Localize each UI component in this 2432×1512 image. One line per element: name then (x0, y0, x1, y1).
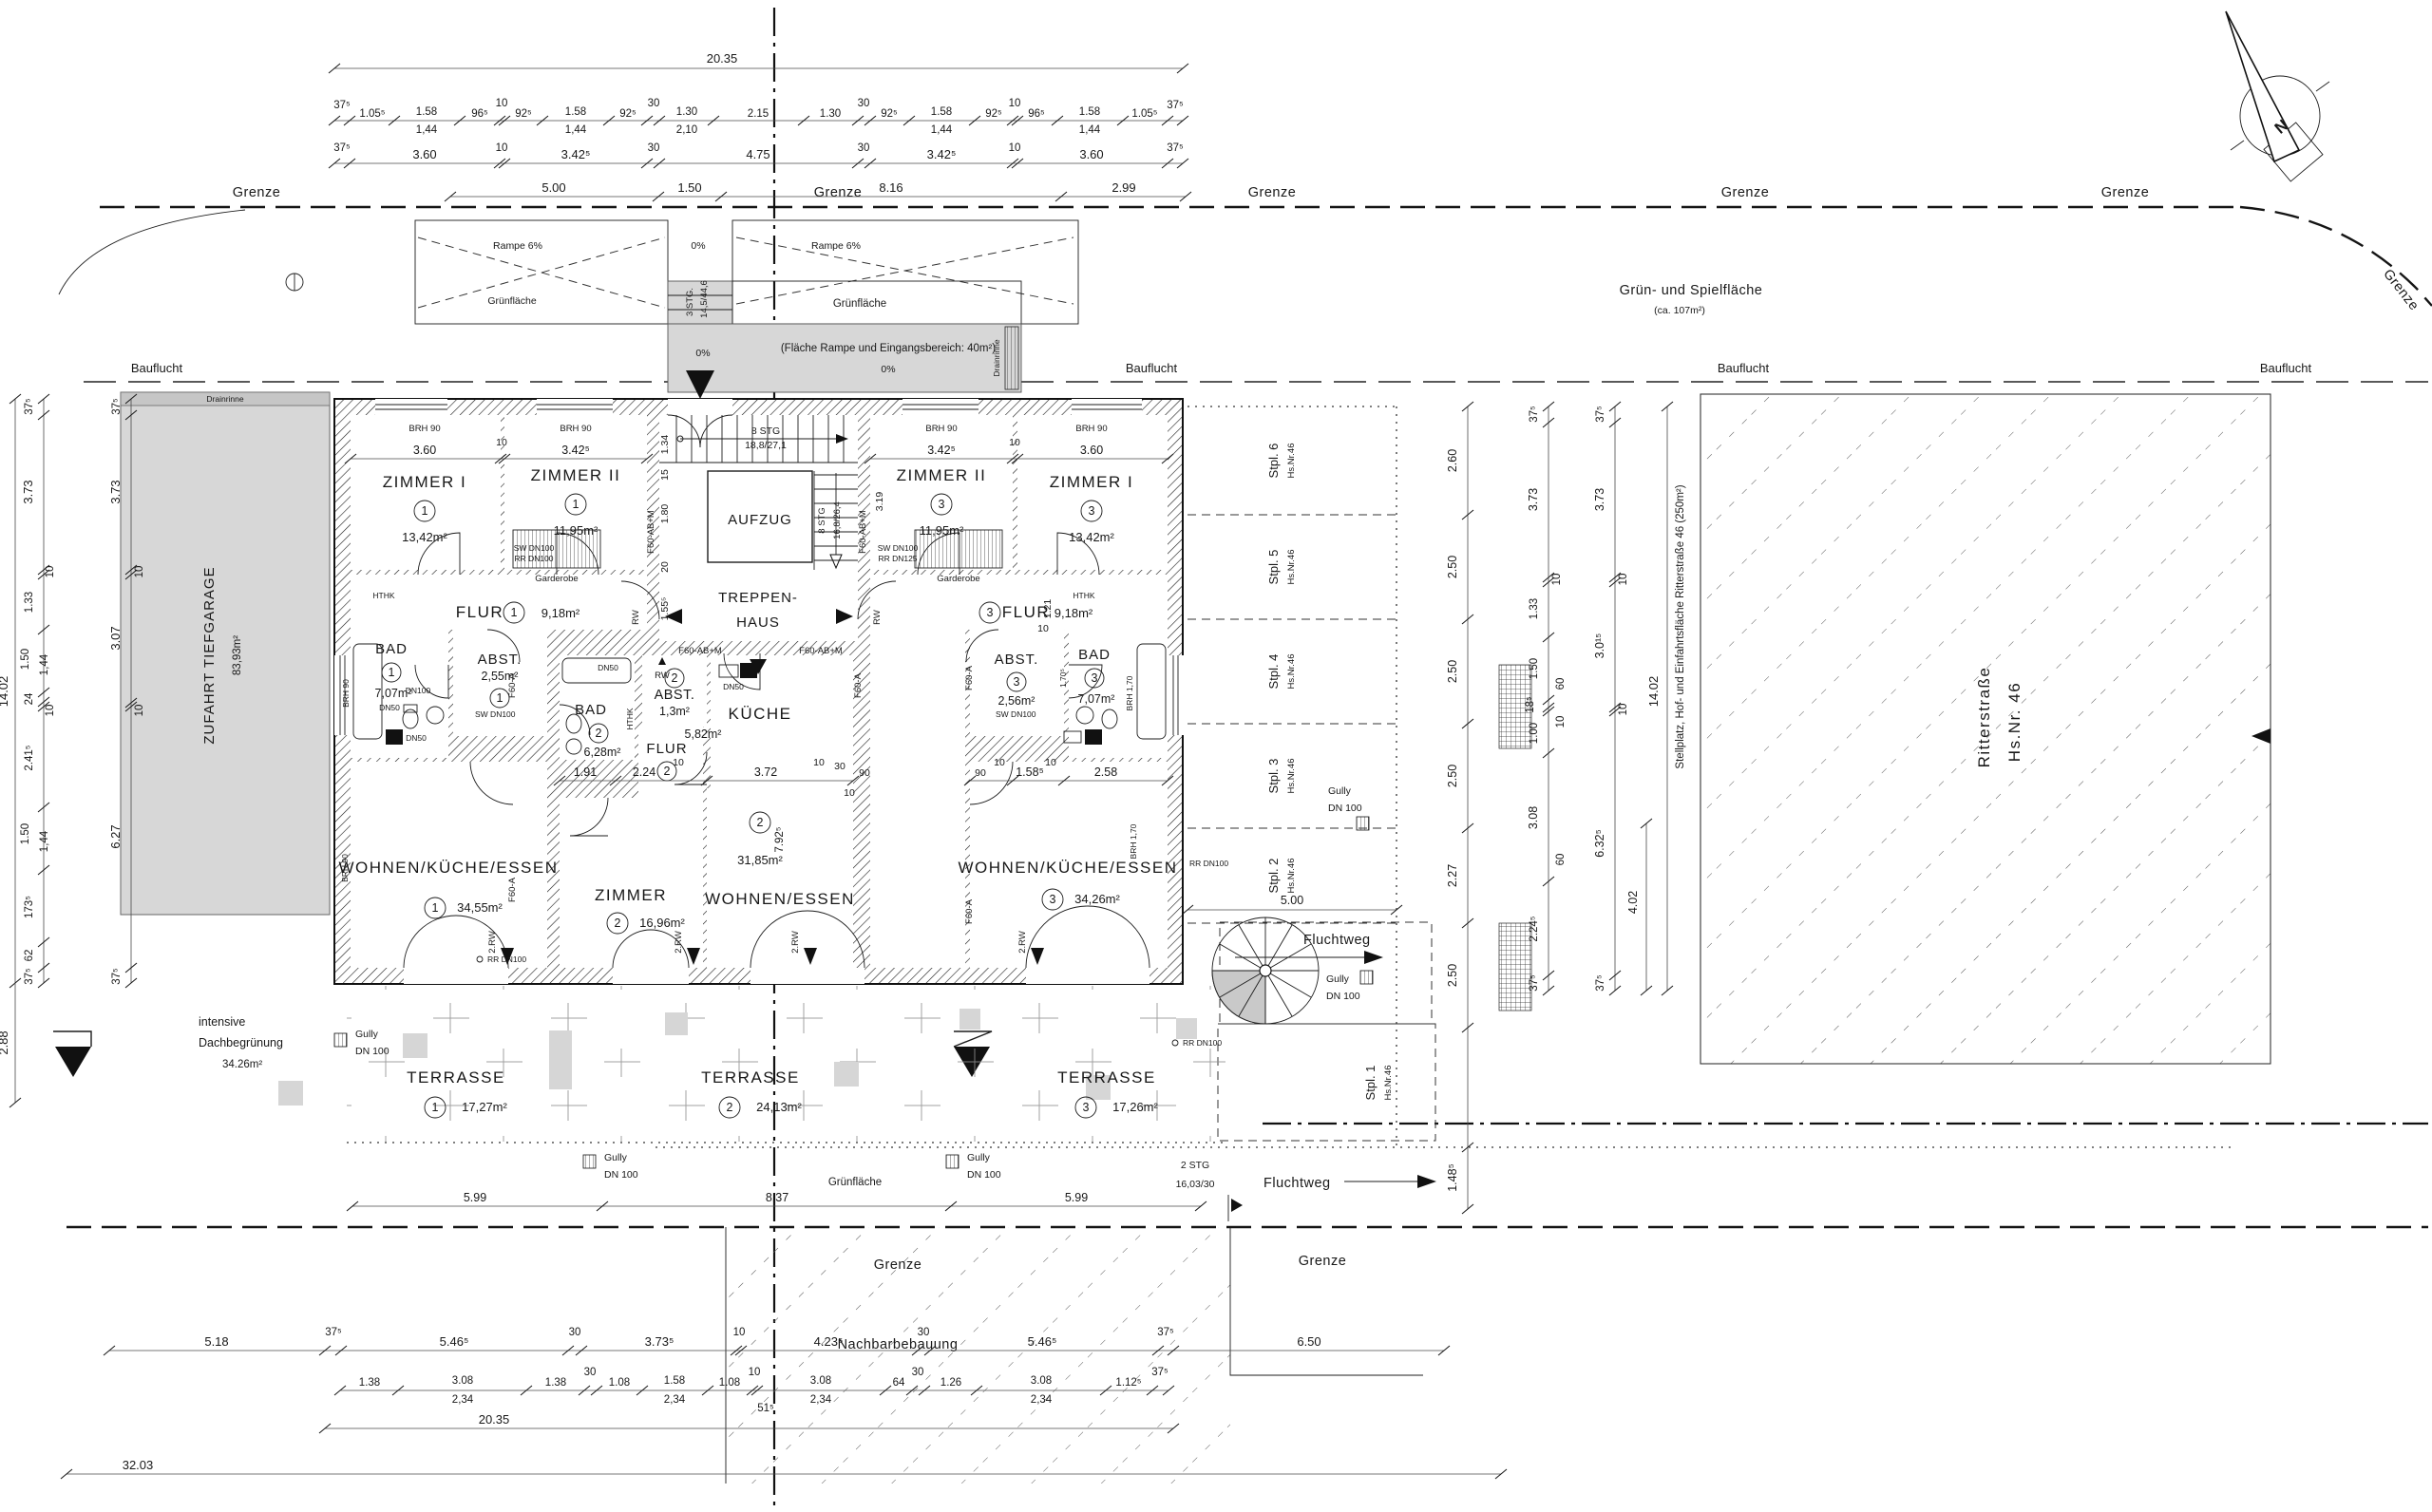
svg-text:10: 10 (1618, 704, 1629, 716)
svg-text:3.07: 3.07 (108, 626, 123, 650)
room-b2: BAD (575, 702, 607, 718)
svg-text:37⁵: 37⁵ (111, 968, 123, 985)
svg-text:2.58: 2.58 (1094, 765, 1117, 779)
svg-text:3.19: 3.19 (874, 492, 885, 512)
svg-text:2.50: 2.50 (1446, 556, 1459, 578)
svg-text:8.37: 8.37 (766, 1191, 788, 1204)
svg-text:11,95m²: 11,95m² (920, 523, 964, 538)
f60-label: F60-AB+M (858, 510, 868, 554)
room-zi2: ZIMMER (595, 886, 667, 904)
planting-strip (1499, 923, 1531, 1011)
section-marker-left (53, 1031, 91, 1077)
stellplatz-label: Stellplatz, Hof- und Einfahrtsfläche Rit… (1675, 484, 1686, 768)
svg-text:3.42⁵: 3.42⁵ (561, 444, 590, 457)
rw-label: RW (631, 610, 641, 625)
svg-text:1.05⁵: 1.05⁵ (359, 108, 385, 120)
svg-text:1: 1 (432, 901, 439, 915)
treppenhaus-label-1: TREPPEN- (718, 590, 798, 606)
svg-text:51⁵: 51⁵ (757, 1403, 774, 1414)
room-z2r: ZIMMER II (897, 466, 987, 484)
svg-text:1.50: 1.50 (20, 649, 31, 670)
rw-label: RW (872, 610, 883, 625)
svg-text:Stpl. 2: Stpl. 2 (1266, 859, 1281, 894)
svg-text:30: 30 (858, 98, 870, 109)
svg-text:1.33: 1.33 (24, 592, 35, 613)
svg-text:2.99: 2.99 (1111, 180, 1135, 195)
svg-text:30: 30 (834, 761, 845, 772)
svg-text:2.24⁵: 2.24⁵ (1529, 916, 1540, 941)
floor-plan-sheet: Grenze Grenze Grenze Grenze Grenze Grenz… (0, 0, 2432, 1512)
svg-text:7.92⁵: 7.92⁵ (774, 826, 786, 852)
room-z1r: ZIMMER I (1050, 473, 1134, 491)
svg-text:24: 24 (24, 692, 35, 705)
svg-text:30: 30 (648, 142, 660, 154)
room-f1: FLUR (456, 603, 503, 621)
stall-label-3: Stpl. 3 Hs.Nr.46 (1266, 759, 1297, 794)
gully-terrace-2: GullyDN 100 (946, 1152, 1001, 1181)
svg-text:3.60: 3.60 (1079, 147, 1103, 161)
svg-text:2: 2 (615, 917, 621, 930)
grenze-label: Grenze (814, 185, 863, 200)
svg-text:2.27: 2.27 (1446, 864, 1459, 887)
svg-text:37⁵: 37⁵ (1595, 974, 1606, 992)
svg-text:Gully: Gully (1328, 785, 1352, 797)
svg-text:1.33: 1.33 (1529, 598, 1540, 619)
svg-text:3.08: 3.08 (1031, 1375, 1052, 1387)
svg-text:1.34: 1.34 (659, 435, 671, 455)
svg-text:3: 3 (1014, 675, 1020, 689)
svg-text:1.26: 1.26 (940, 1377, 961, 1389)
svg-text:37⁵: 37⁵ (1529, 974, 1540, 992)
svg-text:32.03: 32.03 (123, 1458, 154, 1472)
svg-text:10: 10 (1618, 574, 1629, 586)
drainrinne-label: Drainrinne (206, 394, 243, 404)
svg-text:1.50: 1.50 (1529, 658, 1540, 679)
svg-text:3: 3 (987, 606, 994, 619)
entrance-area: Rampe 6% Grünfläche Rampe 6% 0% 3 STG. 1… (415, 220, 1101, 427)
stair2-dim: 16,8/26,4 (832, 501, 843, 539)
grenze-label: Grenze (233, 185, 281, 200)
svg-text:1: 1 (422, 504, 428, 518)
gruenflaeche-label: Grünfläche (487, 295, 537, 307)
svg-text:F60-A: F60-A (964, 665, 975, 690)
svg-text:2.24: 2.24 (633, 765, 655, 779)
ritterstrasse-label: Ritterstraße (1975, 667, 1993, 768)
svg-text:5.46⁵: 5.46⁵ (1028, 1334, 1057, 1349)
street-curve (59, 210, 245, 294)
svg-text:11,95m²: 11,95m² (554, 523, 598, 538)
room-b3: BAD (1078, 647, 1111, 663)
dach-area: 34.26m² (222, 1059, 262, 1070)
svg-text:60: 60 (1555, 854, 1567, 866)
svg-text:13,42m²: 13,42m² (1069, 530, 1114, 544)
svg-text:3.60: 3.60 (413, 444, 436, 457)
neighbor-parcel: Grenze Nachbarbebauung Grenze (726, 1227, 1423, 1484)
svg-text:Hs.Nr.46: Hs.Nr.46 (1286, 759, 1297, 794)
svg-text:3.42⁵: 3.42⁵ (927, 147, 957, 161)
svg-text:DN50: DN50 (723, 682, 744, 691)
svg-text:30: 30 (569, 1327, 581, 1338)
svg-text:34,55m²: 34,55m² (457, 900, 503, 915)
svg-text:37⁵: 37⁵ (24, 398, 35, 415)
svg-text:10: 10 (1009, 142, 1021, 154)
svg-text:DN 100: DN 100 (967, 1169, 1001, 1181)
svg-text:3: 3 (1083, 1101, 1090, 1114)
svg-text:5.99: 5.99 (1065, 1191, 1088, 1204)
svg-text:5.00: 5.00 (541, 180, 565, 195)
svg-text:RR DN100: RR DN100 (487, 954, 526, 964)
svg-text:37⁵: 37⁵ (1151, 1367, 1168, 1378)
bauflucht-label: Bauflucht (1718, 361, 1770, 375)
gully-terrace-1: GullyDN 100 (583, 1152, 638, 1181)
garderobe-label: Garderobe (535, 574, 578, 584)
steps-count: 3 STG. (685, 288, 695, 316)
svg-text:Hs.Nr.46: Hs.Nr.46 (1286, 444, 1297, 479)
svg-text:SW DN100: SW DN100 (996, 709, 1036, 719)
svg-text:64: 64 (893, 1377, 905, 1389)
svg-text:BRH 90: BRH 90 (408, 424, 440, 434)
svg-text:1.58: 1.58 (1079, 106, 1100, 118)
svg-text:10: 10 (1009, 98, 1021, 109)
svg-text:Stpl. 1: Stpl. 1 (1363, 1066, 1377, 1101)
terrasse-1: TERRASSE (407, 1068, 505, 1087)
dach-label-1: intensive (199, 1015, 245, 1029)
svg-text:1.55⁵: 1.55⁵ (659, 597, 671, 621)
svg-text:4.75: 4.75 (746, 147, 769, 161)
svg-text:1.58: 1.58 (416, 106, 437, 118)
ramp-left-label: Rampe 6% (493, 240, 542, 252)
svg-text:2,10: 2,10 (676, 124, 697, 136)
svg-text:30: 30 (912, 1367, 924, 1378)
svg-text:92⁵: 92⁵ (985, 108, 1002, 120)
gruenflaeche-label: Grünfläche (833, 298, 886, 310)
f60-label: F60-AB+M (799, 646, 843, 656)
svg-text:2: 2 (757, 816, 764, 829)
north-needle (2226, 11, 2299, 161)
plan-drawing: Grenze Grenze Grenze Grenze Grenze Grenz… (0, 0, 2432, 1512)
svg-text:37⁵: 37⁵ (111, 398, 123, 415)
svg-text:5,82m²: 5,82m² (685, 728, 722, 741)
svg-text:2.RW: 2.RW (487, 931, 498, 954)
svg-text:1.21: 1.21 (1042, 599, 1054, 619)
stall-label-6: Stpl. 6 Hs.Nr.46 (1266, 444, 1297, 479)
svg-text:5.99: 5.99 (464, 1191, 486, 1204)
room-kueche: KÜCHE (728, 705, 791, 723)
stall-dim: 5.00 (1281, 894, 1303, 907)
svg-text:3.73: 3.73 (1593, 488, 1606, 511)
svg-text:1: 1 (432, 1101, 439, 1114)
svg-text:30: 30 (584, 1367, 597, 1378)
svg-text:2.60: 2.60 (1446, 449, 1459, 472)
svg-text:14.02: 14.02 (1646, 676, 1661, 708)
grenze-label: Grenze (1299, 1254, 1347, 1269)
svg-text:10: 10 (673, 757, 684, 768)
zero-grade-label: 0% (695, 348, 710, 359)
svg-text:BRH 90: BRH 90 (1075, 424, 1107, 434)
svg-text:DN 100: DN 100 (1328, 803, 1362, 814)
spielflaeche: Grün- und Spielfläche (ca. 107m²) (1620, 283, 1763, 316)
terrasse-3: TERRASSE (1057, 1068, 1156, 1087)
svg-text:2.50: 2.50 (1446, 765, 1459, 787)
svg-text:BRH 90: BRH 90 (341, 679, 351, 708)
svg-text:DN 100: DN 100 (1326, 991, 1360, 1002)
svg-text:BRH 90: BRH 90 (925, 424, 957, 434)
svg-text:DN 100: DN 100 (604, 1169, 638, 1181)
svg-text:SW DN100: SW DN100 (475, 709, 516, 719)
svg-text:1,44: 1,44 (565, 124, 587, 136)
stall-label-2: Stpl. 2 Hs.Nr.46 (1266, 859, 1297, 894)
room-w1: WOHNEN/KÜCHE/ESSEN (338, 859, 558, 877)
svg-text:3: 3 (1092, 671, 1098, 685)
steps2-dim: 16,03/30 (1176, 1179, 1215, 1190)
room-z1l: ZIMMER I (383, 473, 467, 491)
svg-text:3.42⁵: 3.42⁵ (927, 444, 956, 457)
svg-text:3: 3 (1050, 893, 1056, 906)
zero-grade-label: 0% (881, 364, 895, 375)
svg-text:1.80: 1.80 (659, 504, 671, 524)
stair1-dim: 18,8/27,1 (745, 440, 787, 451)
svg-text:3.0¹⁵: 3.0¹⁵ (1593, 633, 1606, 659)
stall-label-5: Stpl. 5 Hs.Nr.46 (1266, 550, 1297, 585)
svg-text:37⁵: 37⁵ (1167, 100, 1184, 111)
svg-text:Hs.Nr.46: Hs.Nr.46 (1383, 1066, 1394, 1101)
svg-text:2.41⁵: 2.41⁵ (24, 745, 35, 770)
svg-text:10: 10 (733, 1327, 746, 1338)
svg-text:1.48⁵: 1.48⁵ (1446, 1163, 1459, 1192)
svg-text:30: 30 (858, 142, 870, 154)
svg-text:92⁵: 92⁵ (515, 108, 532, 120)
svg-text:9,18m²: 9,18m² (541, 606, 580, 620)
svg-text:1,44: 1,44 (39, 830, 50, 852)
svg-text:20.35: 20.35 (479, 1412, 510, 1427)
svg-text:2: 2 (596, 727, 602, 740)
svg-text:5.18: 5.18 (204, 1334, 228, 1349)
svg-text:3.60: 3.60 (1080, 444, 1103, 457)
svg-text:3.60: 3.60 (412, 147, 436, 161)
room-w3: WOHNEN/KÜCHE/ESSEN (958, 859, 1177, 877)
room-a3: ABST. (995, 652, 1039, 668)
svg-text:Stpl. 4: Stpl. 4 (1266, 654, 1281, 690)
svg-text:1,44: 1,44 (39, 653, 50, 675)
bauflucht-label: Bauflucht (2260, 361, 2312, 375)
svg-text:10: 10 (134, 566, 145, 578)
svg-text:6,28m²: 6,28m² (584, 746, 621, 759)
svg-text:1: 1 (511, 606, 518, 619)
svg-text:10: 10 (994, 757, 1005, 768)
svg-text:1.30: 1.30 (820, 108, 841, 120)
svg-text:2,34: 2,34 (452, 1394, 474, 1406)
svg-text:10: 10 (1551, 574, 1563, 586)
f60-label: F60-AB+M (678, 646, 722, 656)
svg-text:Stpl. 3: Stpl. 3 (1266, 759, 1281, 794)
svg-text:7,07m²: 7,07m² (375, 687, 412, 700)
svg-text:5.46⁵: 5.46⁵ (440, 1334, 469, 1349)
svg-text:31,85m²: 31,85m² (737, 853, 783, 867)
fluchtweg-label: Fluchtweg (1303, 933, 1371, 948)
terrace-paving (347, 986, 1225, 1142)
grenze-label: Grenze (1721, 185, 1770, 200)
svg-text:10: 10 (496, 142, 508, 154)
svg-text:34,26m²: 34,26m² (1074, 892, 1120, 906)
svg-text:92⁵: 92⁵ (881, 108, 898, 120)
svg-text:BRH 1,70: BRH 1,70 (1129, 823, 1138, 859)
svg-text:10: 10 (1045, 757, 1056, 768)
room-a1: ABST. (478, 652, 522, 668)
svg-text:10: 10 (1037, 623, 1049, 634)
svg-text:1.91: 1.91 (574, 765, 597, 779)
svg-text:2.RW: 2.RW (1017, 931, 1028, 954)
steps-dim: 14,5/44,6 (699, 280, 710, 318)
lift-label: AUFZUG (728, 512, 792, 528)
stall-label-4: Stpl. 4 Hs.Nr.46 (1266, 654, 1297, 690)
svg-text:2,55m²: 2,55m² (482, 670, 519, 683)
dach-label-2: Dachbegrünung (199, 1036, 283, 1049)
gruenflaeche-label: Grünfläche (828, 1177, 882, 1188)
svg-text:2.88: 2.88 (0, 1030, 10, 1054)
zufahrt-area: 83,93m² (232, 635, 243, 675)
pipe-label: RR DN100 (514, 554, 553, 563)
room-z2l: ZIMMER II (531, 466, 621, 484)
drainrinne-label: Drainrinne (992, 339, 1001, 376)
north-arrow: N (2226, 11, 2329, 181)
svg-text:Gully: Gully (967, 1152, 991, 1163)
svg-text:2.15: 2.15 (748, 108, 769, 120)
svg-text:HTHK: HTHK (625, 708, 635, 729)
svg-text:1.08: 1.08 (609, 1377, 630, 1389)
grenze-label: Grenze (874, 1257, 922, 1273)
svg-text:Gully: Gully (1326, 973, 1350, 985)
f60-label: F60-AB+M (646, 510, 656, 554)
steps2-count: 2 STG (1181, 1160, 1209, 1171)
svg-text:6.50: 6.50 (1297, 1334, 1320, 1349)
grenze-label: Grenze (2101, 185, 2150, 200)
room-a2: ABST. (655, 688, 695, 703)
svg-text:RR DN100: RR DN100 (1189, 859, 1228, 868)
bauflucht-label: Bauflucht (131, 361, 183, 375)
svg-text:3.72: 3.72 (754, 765, 777, 779)
spielflaeche-label: Grün- und Spielfläche (1620, 283, 1763, 298)
svg-text:10: 10 (134, 705, 145, 717)
pipe-label: SW DN100 (878, 543, 919, 553)
svg-text:1.38: 1.38 (359, 1377, 380, 1389)
svg-text:DN50: DN50 (598, 663, 618, 672)
svg-text:F60-A: F60-A (507, 877, 518, 902)
svg-text:9,18m²: 9,18m² (1054, 606, 1093, 620)
treppenhaus-label-2: HAUS (736, 614, 780, 631)
svg-text:2.50: 2.50 (1446, 660, 1459, 683)
svg-text:3: 3 (939, 498, 945, 511)
svg-text:90: 90 (975, 767, 986, 779)
room-f2: FLUR (646, 741, 687, 757)
svg-text:3.73: 3.73 (108, 480, 123, 503)
svg-text:10: 10 (1009, 437, 1020, 448)
svg-text:16,96m²: 16,96m² (639, 916, 685, 930)
svg-text:6.32⁵: 6.32⁵ (1593, 829, 1606, 858)
right-dimensions: 2.60 2.50 2.50 2.50 2.27 2.50 1.48⁵ 37⁵ … (1446, 402, 1673, 1214)
svg-text:37⁵: 37⁵ (24, 968, 35, 985)
svg-text:1.50: 1.50 (20, 823, 31, 844)
svg-text:HTHK: HTHK (1073, 591, 1094, 600)
terraces: TERRASSE 1 17,27m² TERRASSE 2 24,13m² TE… (278, 986, 1225, 1211)
gully-stall4: GullyDN 100 (1328, 785, 1369, 830)
svg-text:1.58: 1.58 (931, 106, 952, 118)
svg-text:20: 20 (659, 561, 671, 573)
svg-text:BRH 90: BRH 90 (560, 424, 591, 434)
svg-text:20.35: 20.35 (707, 51, 738, 66)
svg-text:1,44: 1,44 (931, 124, 953, 136)
hausnummer-label: Hs.Nr. 46 (2005, 682, 2023, 762)
room-we2: WOHNEN/ESSEN (705, 890, 855, 908)
spielflaeche-area: (ca. 107m²) (1654, 305, 1705, 316)
pipe-label: SW DN100 (514, 543, 555, 553)
svg-text:14.02: 14.02 (0, 676, 10, 708)
svg-text:10: 10 (45, 566, 56, 578)
svg-text:10: 10 (496, 437, 507, 448)
svg-text:DN50: DN50 (406, 733, 427, 743)
svg-text:1: 1 (389, 666, 395, 679)
svg-text:1.05⁵: 1.05⁵ (1131, 108, 1157, 120)
svg-text:37⁵: 37⁵ (1529, 406, 1540, 423)
svg-text:3.08: 3.08 (452, 1375, 473, 1387)
svg-text:62: 62 (24, 950, 35, 962)
svg-text:10: 10 (813, 757, 825, 768)
svg-text:2,34: 2,34 (810, 1394, 832, 1406)
svg-text:90: 90 (859, 767, 870, 779)
terrasse-2: TERRASSE (701, 1068, 800, 1087)
svg-text:DN50: DN50 (379, 703, 400, 712)
svg-text:3.73: 3.73 (21, 480, 35, 503)
svg-text:Stpl. 5: Stpl. 5 (1266, 550, 1281, 585)
svg-text:17,26m²: 17,26m² (1112, 1100, 1158, 1114)
pipe-label: RR DN125 (878, 554, 917, 563)
zufahrt-label: ZUFAHRT TIEFGARAGE (201, 566, 218, 744)
parking-stalls: Stpl. 6 Hs.Nr.46 Stpl. 5 Hs.Nr.46 Stpl. … (1182, 406, 1531, 1147)
svg-text:37⁵: 37⁵ (1157, 1327, 1174, 1338)
svg-text:1,44: 1,44 (416, 124, 438, 136)
svg-text:2,34: 2,34 (1031, 1394, 1053, 1406)
svg-text:Hs.Nr.46: Hs.Nr.46 (1286, 550, 1297, 585)
svg-text:1.50: 1.50 (677, 180, 701, 195)
stair2-label: 8 STG (817, 507, 827, 533)
svg-text:10: 10 (45, 705, 56, 717)
svg-text:3.08: 3.08 (1527, 806, 1540, 829)
svg-text:3.08: 3.08 (810, 1375, 831, 1387)
svg-text:37⁵: 37⁵ (1167, 142, 1184, 154)
svg-text:10: 10 (1555, 716, 1567, 728)
svg-text:2,34: 2,34 (664, 1394, 686, 1406)
svg-text:2.50: 2.50 (1446, 964, 1459, 987)
svg-text:4.23⁵: 4.23⁵ (814, 1334, 844, 1349)
svg-text:3.73: 3.73 (1527, 488, 1540, 511)
ramp-right-label: Rampe 6% (811, 240, 861, 252)
svg-text:HTHK: HTHK (372, 591, 394, 600)
building: 8 STG 18,8/27,1 AUFZUG 8 STG 16,8/26,4 T… (334, 399, 1228, 1048)
svg-text:96⁵: 96⁵ (471, 108, 488, 120)
fluchtweg-label-bottom: Fluchtweg (1263, 1176, 1331, 1191)
svg-text:30: 30 (648, 98, 660, 109)
svg-text:13,42m²: 13,42m² (402, 530, 447, 544)
svg-text:1,3m²: 1,3m² (659, 705, 690, 718)
svg-text:1.58: 1.58 (565, 106, 586, 118)
flaeche-rampe-label: (Fläche Rampe und Eingangsbereich: 40m²) (781, 343, 996, 354)
svg-text:2.RW: 2.RW (674, 931, 684, 954)
svg-text:1.30: 1.30 (676, 106, 697, 118)
zero-grade-label: 0% (691, 240, 705, 252)
svg-text:BRH 1,70: BRH 1,70 (1125, 675, 1134, 710)
room-b1: BAD (375, 641, 408, 657)
svg-text:2: 2 (672, 671, 678, 685)
svg-text:1.00: 1.00 (1529, 723, 1540, 744)
